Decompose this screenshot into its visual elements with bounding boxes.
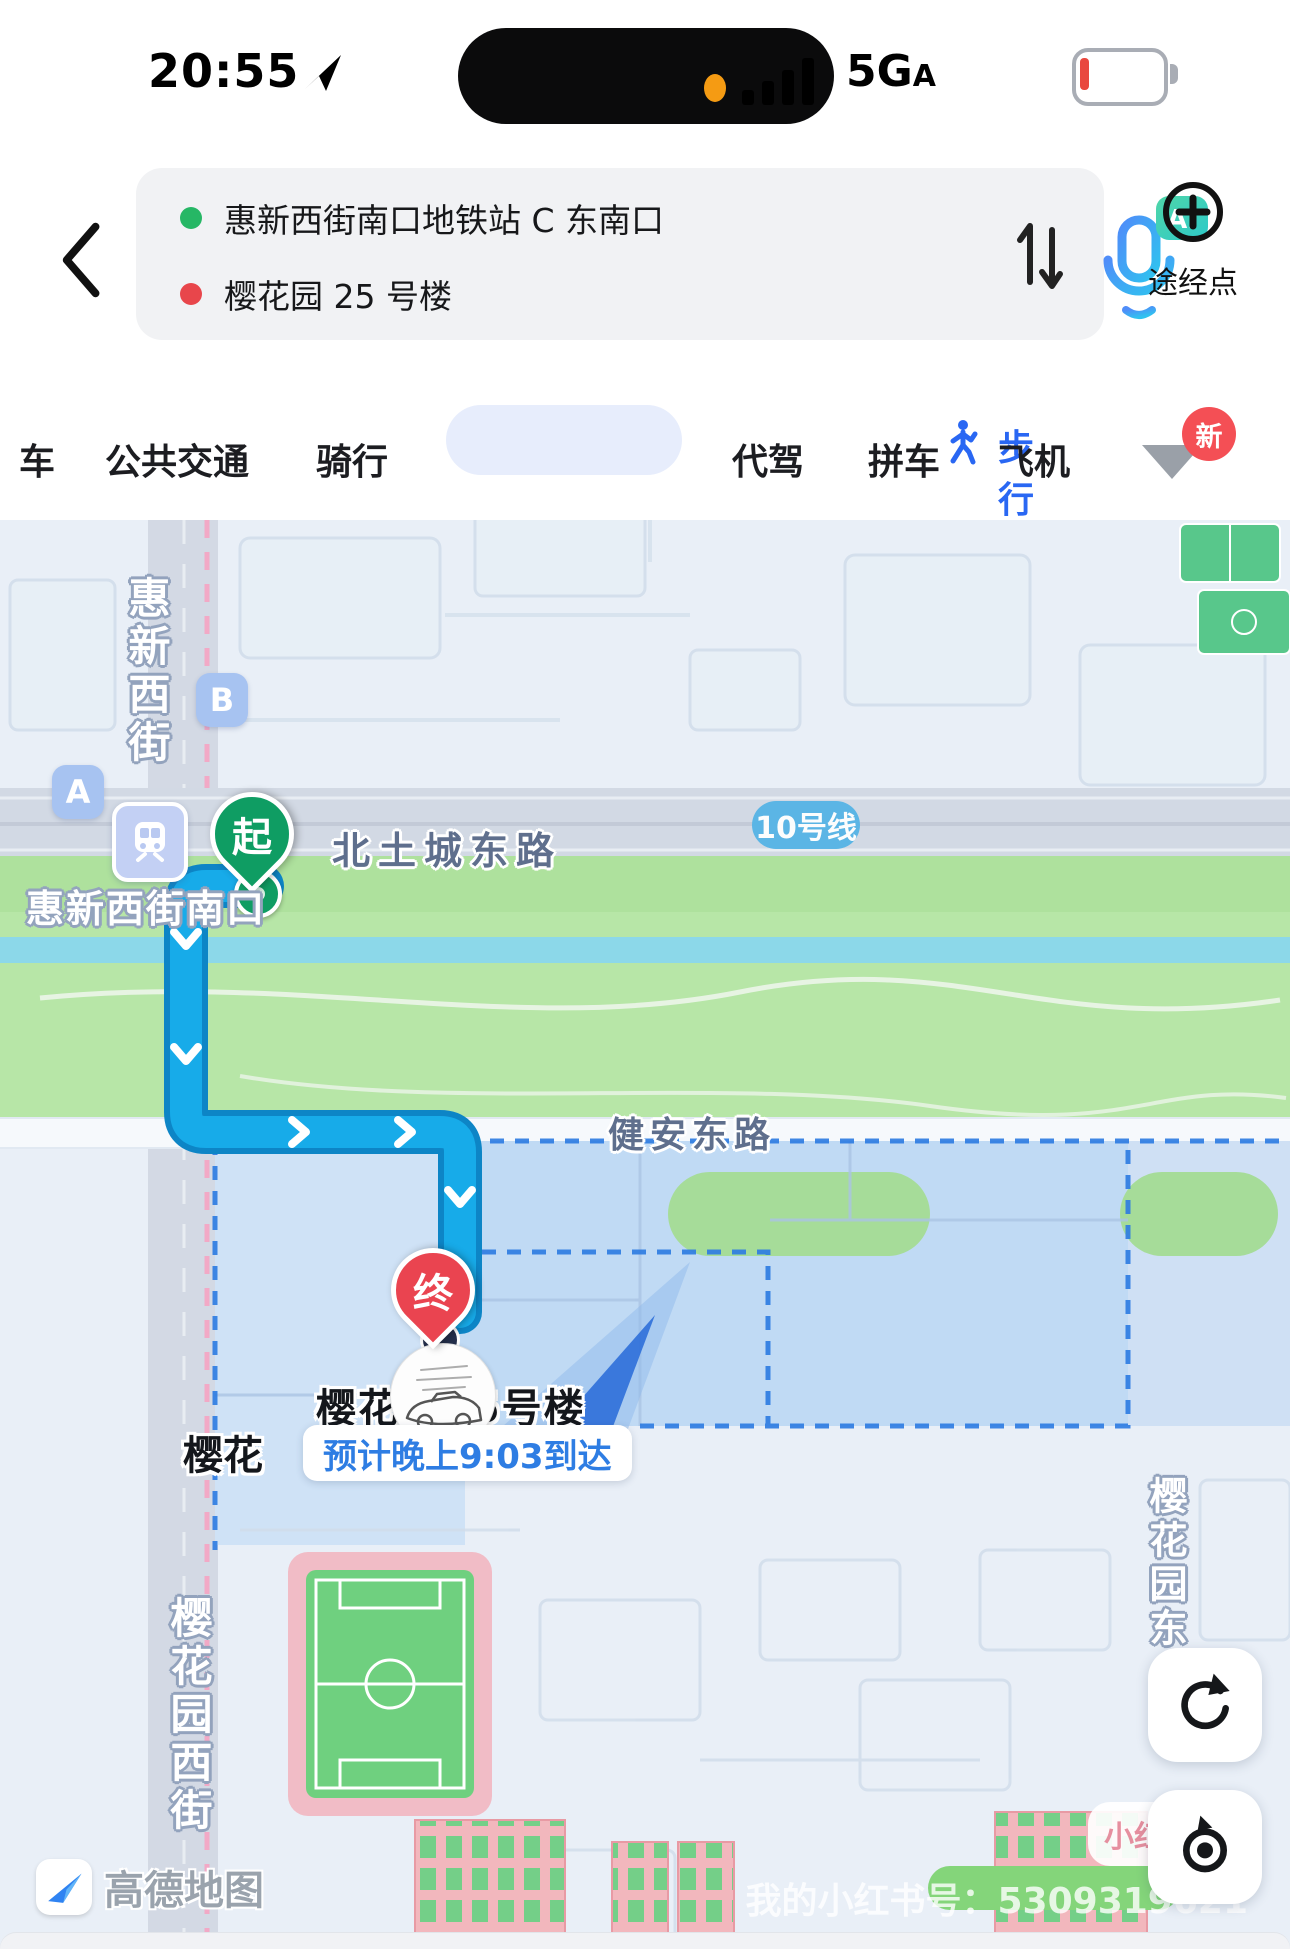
map-view[interactable]: 惠新西街 北土城东路 惠新西街南口 健安东路 樱花 樱花园西街 樱花园东 B A… — [0, 520, 1290, 1949]
tab-cycling[interactable]: 骑行 — [316, 433, 388, 485]
tab-carpool[interactable]: 拼车 — [868, 433, 940, 485]
metro-exit-b-badge[interactable]: B — [196, 673, 248, 727]
battery-cap — [1170, 64, 1178, 84]
refresh-icon — [1167, 1667, 1243, 1743]
destination-field[interactable]: 樱花园 25 号楼 — [180, 272, 452, 316]
plus-circle-icon — [1161, 180, 1225, 244]
metro-exit-a-badge[interactable]: A — [52, 765, 104, 819]
route-input-card[interactable]: 惠新西街南口地铁站 C 东南口 樱花园 25 号楼 — [136, 168, 1104, 340]
tab-chauffeur[interactable]: 代驾 — [732, 433, 804, 485]
end-pin-label: 终 — [413, 1261, 453, 1319]
tab-che[interactable]: 车 — [19, 433, 55, 485]
new-badge: 新 — [1182, 407, 1236, 461]
back-button[interactable] — [50, 220, 110, 300]
signal-strength-icon — [742, 56, 830, 106]
amap-logo-text: 高德地图 — [104, 1858, 264, 1916]
label-station-name: 惠新西街南口 — [26, 878, 266, 933]
label-huixin-west-street: 惠新西街 — [116, 576, 177, 768]
battery-level-low — [1080, 58, 1089, 90]
clock: 20:55 — [148, 44, 299, 98]
walking-person-icon — [942, 419, 982, 465]
transport-mode-tabs: 车 公共交通 骑行 步行 代驾 拼车 飞机 新 — [0, 405, 1290, 520]
label-yinghua-partial: 樱花 — [183, 1423, 263, 1481]
tab-transit[interactable]: 公共交通 — [105, 433, 249, 485]
label-yinghuayuan-east: 樱花园东 — [1138, 1476, 1193, 1652]
label-jianan-east-road: 健安东路 — [608, 1106, 776, 1158]
metro-station-icon[interactable] — [112, 802, 188, 882]
recenter-location-button[interactable] — [1148, 1790, 1262, 1904]
football-pitch — [288, 1552, 492, 1816]
swap-origin-destination-button[interactable] — [1012, 216, 1068, 296]
metro-line-10-pill: 10号线 — [752, 801, 860, 849]
add-waypoint-button[interactable]: 途经点 — [1128, 180, 1258, 330]
network-5g: 5G — [846, 46, 913, 97]
start-pin-label: 起 — [232, 805, 272, 863]
battery-icon — [1072, 48, 1180, 102]
label-north-tucheng-east-road: 北土城东路 — [332, 820, 562, 875]
origin-dot-icon — [180, 207, 202, 229]
amap-attribution: 高德地图 — [36, 1858, 264, 1916]
tab-flight[interactable]: 飞机 — [998, 433, 1070, 485]
destination-dot-icon — [180, 283, 202, 305]
train-icon — [130, 820, 170, 864]
tab-walking-active[interactable]: 步行 — [446, 405, 682, 475]
microphone-indicator-dot — [704, 74, 726, 102]
bottom-sheet-handle[interactable] — [0, 1933, 1290, 1949]
road-north-tucheng — [0, 788, 1290, 860]
status-bar: 20:55 5GA — [0, 0, 1290, 140]
waypoint-label: 途经点 — [1128, 258, 1258, 302]
eta-bubble: 预计晚上9:03到达 — [303, 1425, 632, 1481]
amap-logo-icon — [36, 1859, 92, 1915]
origin-text[interactable]: 惠新西街南口地铁站 C 东南口 — [224, 194, 664, 242]
label-yinghuayuan-west-street: 樱花园西街 — [158, 1596, 219, 1836]
line-10-text: 10号线 — [755, 803, 857, 847]
paper-plane-logo — [44, 1867, 84, 1907]
sports-courts — [1180, 524, 1290, 654]
route-header: 惠新西街南口地铁站 C 东南口 樱花园 25 号楼 — [0, 140, 1290, 405]
destination-text[interactable]: 樱花园 25 号楼 — [224, 270, 452, 318]
compass-locate-icon — [1167, 1809, 1243, 1885]
eta-text: 预计晚上9:03到达 — [323, 1429, 612, 1478]
refresh-route-button[interactable] — [1148, 1648, 1262, 1762]
network-suffix-a: A — [913, 59, 936, 94]
location-services-icon — [302, 52, 344, 94]
origin-field[interactable]: 惠新西街南口地铁站 C 东南口 — [180, 196, 664, 240]
network-type: 5GA — [846, 46, 936, 97]
